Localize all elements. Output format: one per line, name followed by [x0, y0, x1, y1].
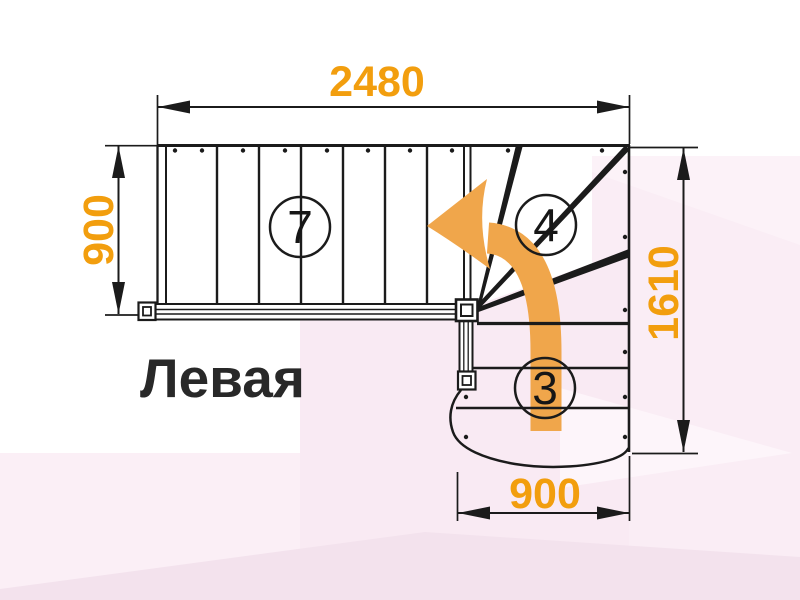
newel-post-main-inner — [461, 305, 473, 317]
plan-title: Левая — [140, 347, 305, 409]
dimension-value-bottom: 900 — [509, 470, 581, 518]
winder-step-count: 4 — [533, 199, 559, 251]
dimension-value-right: 1610 — [640, 245, 688, 341]
stringer-end-cap-inner — [143, 307, 151, 316]
bottom-flight-step-count: 3 — [532, 362, 558, 414]
newel-post-lower-inner — [463, 376, 472, 385]
dimension-value-left: 900 — [75, 194, 123, 266]
stair-plan-drawing: 7 4 3 2480 900 1610 900 — [0, 0, 800, 600]
top-stringer-band — [155, 304, 457, 320]
top-flight-step-count: 7 — [287, 201, 313, 253]
side-stringer-band — [460, 320, 473, 372]
dimension-value-top: 2480 — [329, 58, 425, 106]
